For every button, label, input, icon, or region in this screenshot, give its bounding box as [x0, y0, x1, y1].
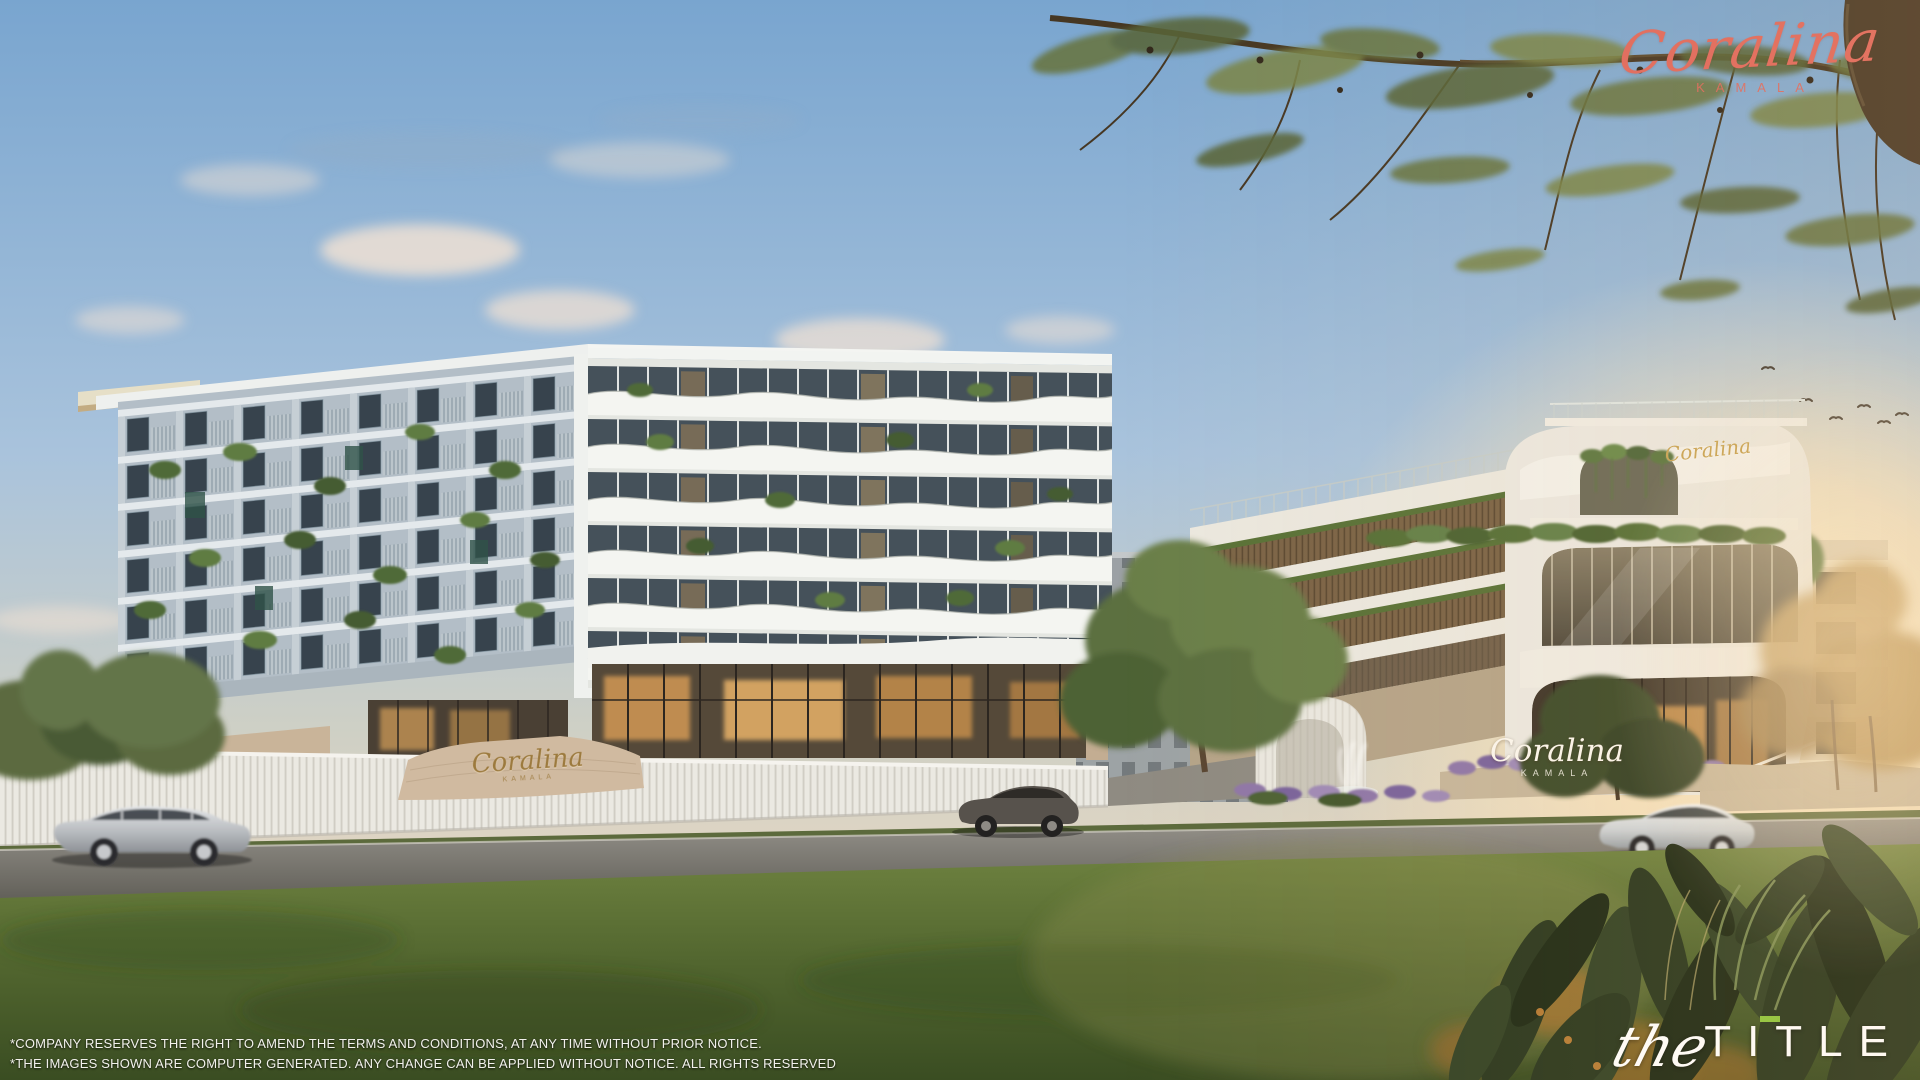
architectural-rendering: Coralina KAMALA Coralina KAMALA Coralina… — [0, 0, 1920, 1080]
warm-color-grade — [0, 0, 1920, 1080]
